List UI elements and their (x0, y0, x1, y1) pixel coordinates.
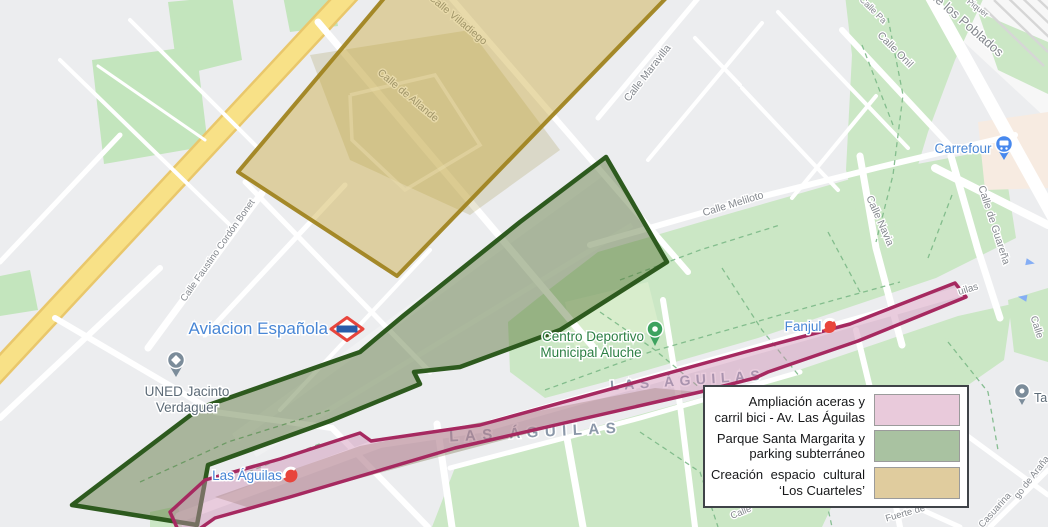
legend-label-parque: Parque Santa Margarita y parking subterr… (717, 431, 865, 463)
metro-diamond-bar (337, 326, 358, 333)
legend-text-line: Ampliación aceras y (714, 394, 865, 410)
metro-circle-icon-fanjul[interactable] (822, 319, 836, 333)
legend-row-cuarteles: Creación espacio cultural ‘Los Cuarteles… (712, 465, 960, 501)
poi-label-carrefour[interactable]: Carrefour (934, 141, 992, 156)
legend-text-line: Parque Santa Margarita y (717, 431, 865, 447)
legend-row-aceras: Ampliación aceras y carril bici - Av. La… (712, 392, 960, 428)
poi-label-uned-line1[interactable]: UNED Jacinto (145, 384, 230, 399)
legend-text-line: ‘Los Cuarteles’ (711, 483, 865, 499)
poi-label-ta[interactable]: Ta (1034, 391, 1047, 405)
pin-glyph (1020, 389, 1025, 394)
metro-circle-icon-las-aguilas[interactable] (283, 468, 298, 483)
map-canvas[interactable]: Calle Villadiego Calle de Allande Calle … (0, 0, 1048, 527)
legend-text-line: parking subterráneo (717, 446, 865, 462)
poi-label-centro-deportivo-line2[interactable]: Municipal Aluche (540, 345, 641, 360)
station-label-las-aguilas[interactable]: Las Águilas (212, 468, 282, 483)
cart-wheel (1005, 147, 1007, 149)
legend-text-line: Creación espacio cultural (711, 467, 865, 483)
legend-swatch-green (874, 430, 960, 462)
poi-label-uned-line2[interactable]: Verdaguer (156, 400, 219, 415)
legend-row-parque: Parque Santa Margarita y parking subterr… (712, 428, 960, 464)
legend-label-cuarteles: Creación espacio cultural ‘Los Cuarteles… (711, 467, 865, 499)
cart-wheel (1000, 147, 1002, 149)
cart-glyph (1000, 141, 1009, 146)
pin-glyph (652, 326, 658, 332)
station-label-fanjul[interactable]: Fanjul (785, 319, 822, 334)
legend-swatch-pink (874, 394, 960, 426)
poi-label-centro-deportivo-line1[interactable]: Centro Deportivo (542, 329, 644, 344)
map-legend: Ampliación aceras y carril bici - Av. La… (703, 385, 969, 508)
station-label-aviacion-espanola[interactable]: Aviacion Española (188, 319, 328, 338)
legend-label-aceras: Ampliación aceras y carril bici - Av. La… (714, 394, 865, 426)
legend-text-line: carril bici - Av. Las Águilas (714, 410, 865, 426)
legend-swatch-tan (874, 467, 960, 499)
